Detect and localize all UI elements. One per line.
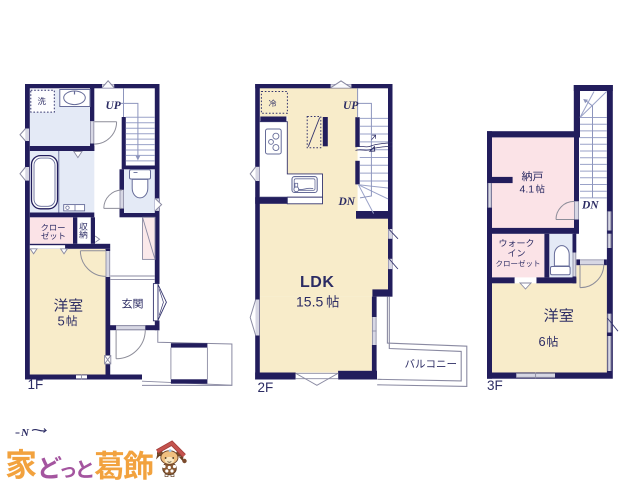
svg-text:3F: 3F bbox=[487, 378, 503, 393]
svg-text:1F: 1F bbox=[28, 377, 44, 392]
svg-text:6: 6 bbox=[539, 334, 546, 349]
svg-text:DN: DN bbox=[338, 196, 356, 208]
svg-text:5: 5 bbox=[58, 313, 65, 328]
svg-text:LDK: LDK bbox=[300, 274, 334, 291]
svg-text:4.1: 4.1 bbox=[520, 184, 535, 196]
svg-text:N: N bbox=[20, 427, 30, 439]
svg-text:DN: DN bbox=[581, 200, 599, 212]
svg-text:UP: UP bbox=[343, 100, 359, 112]
svg-text:15.5: 15.5 bbox=[296, 294, 323, 310]
svg-text:UP: UP bbox=[106, 100, 122, 112]
svg-text:2F: 2F bbox=[258, 380, 274, 395]
